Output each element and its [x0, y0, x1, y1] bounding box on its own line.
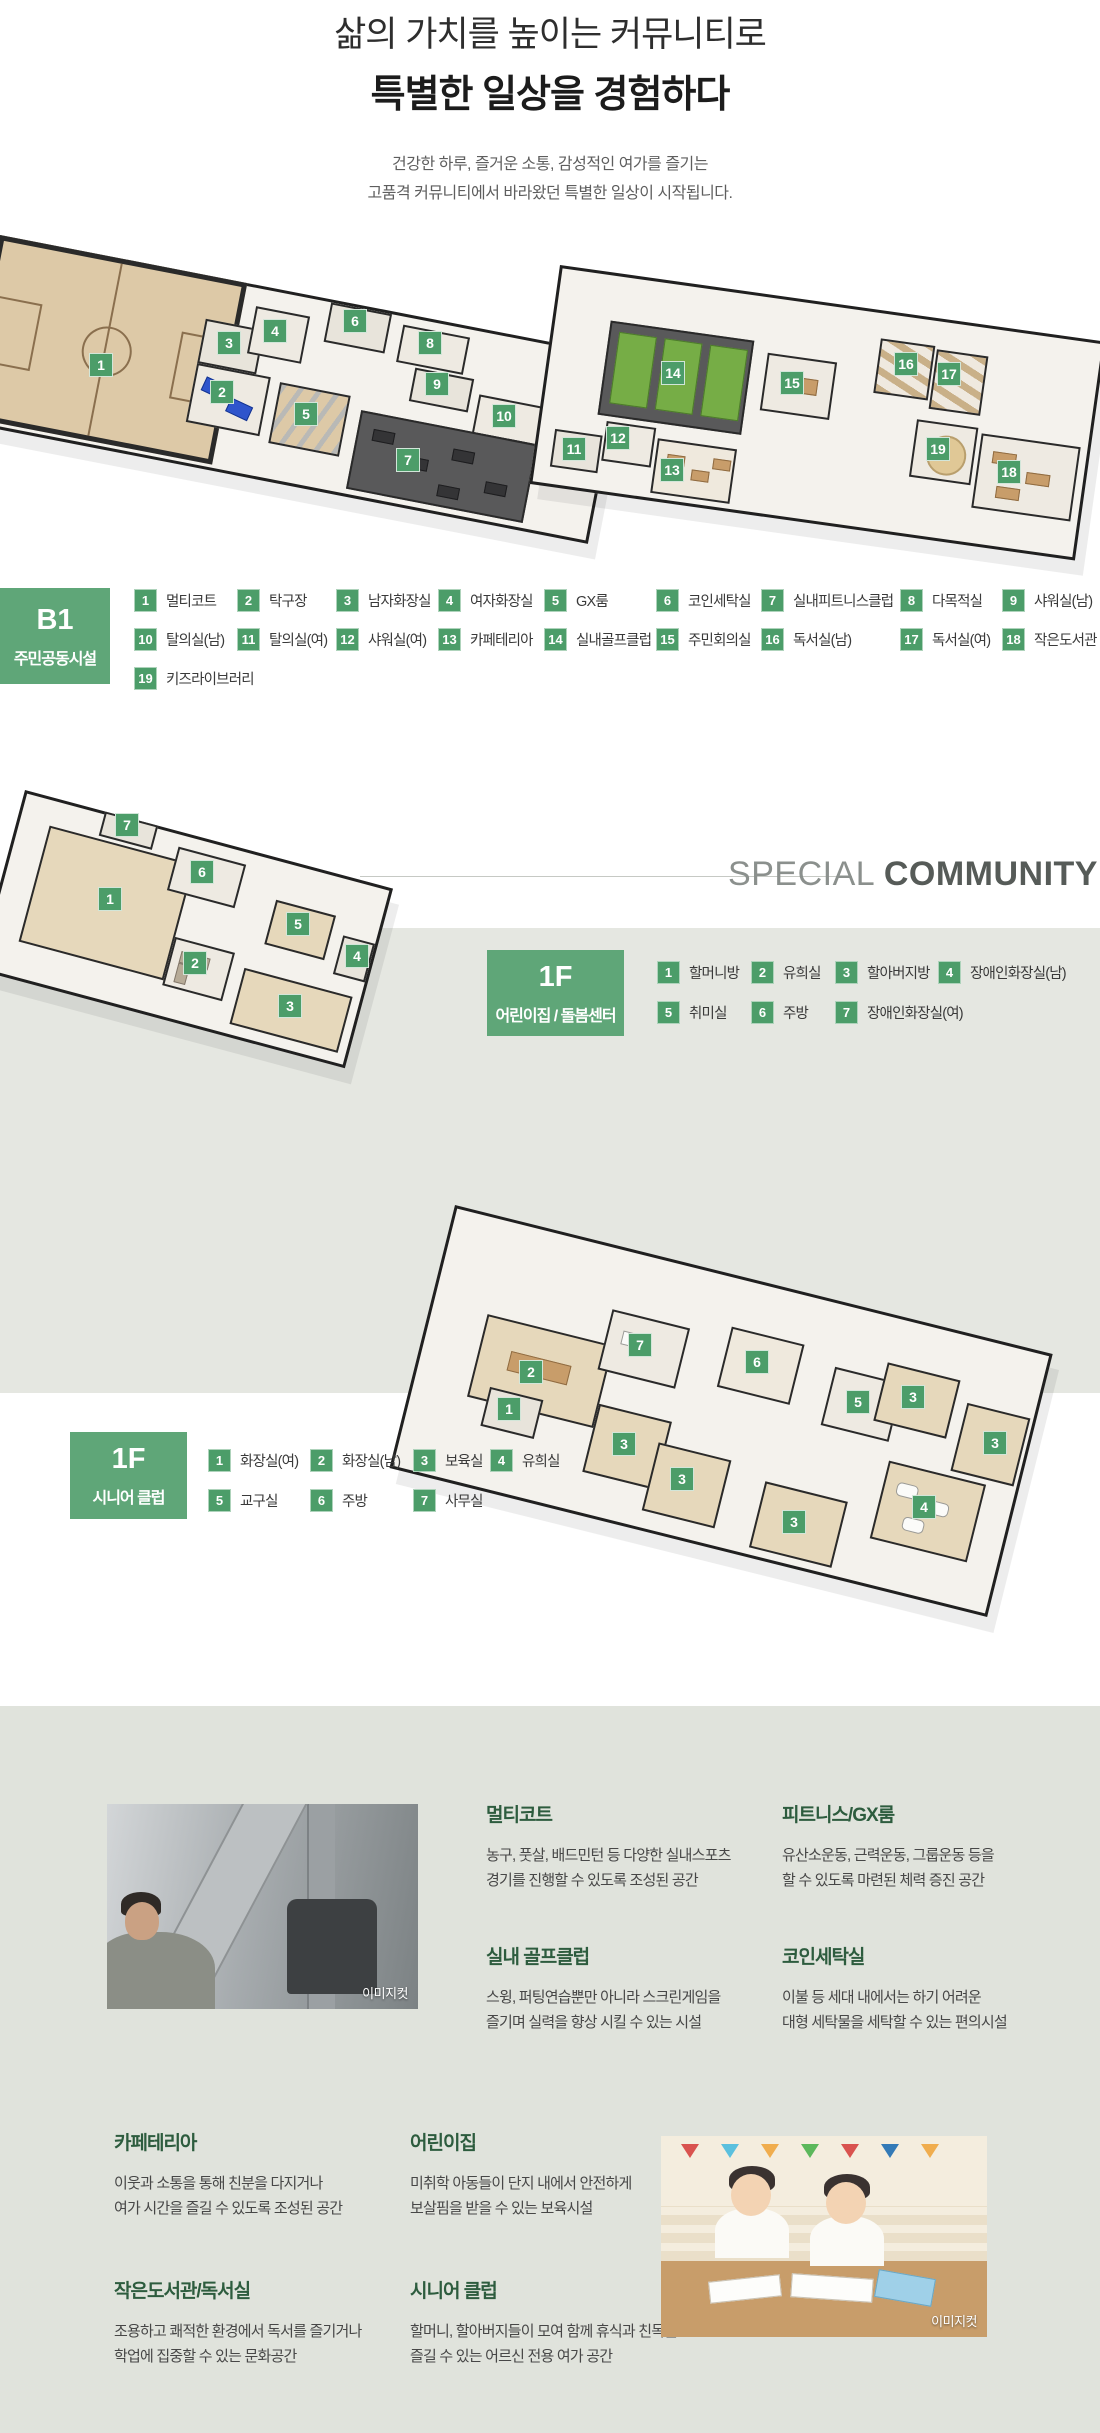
legend-label: 멀티코트 — [166, 590, 216, 611]
legend-item: 8 다목적실 — [900, 588, 982, 612]
legend-item: 10 탈의실(남) — [134, 627, 224, 651]
desc-multicourt: 멀티코트 농구, 풋살, 배드민턴 등 다양한 실내스포츠 경기를 진행할 수 … — [486, 1800, 786, 1893]
senior-floor-box: 1F 시니어 클럽 — [70, 1432, 187, 1519]
page-title-line2: 특별한 일상을 경험하다 — [0, 63, 1100, 118]
legend-label: 유희실 — [522, 1450, 560, 1471]
legend-label: 사무실 — [445, 1490, 483, 1511]
desc-title: 작은도서관/독서실 — [114, 2276, 414, 2303]
legend-number-badge: 1 — [134, 589, 157, 612]
court-key-left — [0, 295, 43, 371]
legend-number-badge: 6 — [310, 1489, 333, 1512]
plan-marker: 9 — [425, 372, 449, 396]
legend-label: 주민회의실 — [688, 629, 751, 650]
legend-number-badge: 1 — [208, 1449, 231, 1472]
daycare-floor-name: 어린이집 / 돌봄센터 — [495, 1002, 615, 1026]
legend-label: 주방 — [783, 1002, 808, 1023]
legend-item: 9 샤워실(남) — [1002, 588, 1092, 612]
legend-item: 2 유희실 — [751, 960, 821, 984]
legend-label: 장애인화장실(남) — [970, 962, 1066, 983]
plan-marker: 3 — [612, 1432, 636, 1456]
photo-caption: 이미지컷 — [362, 1983, 408, 2002]
desc-indoor-golf: 실내 골프클럽 스윙, 퍼팅연습뿐만 아니라 스크린게임을 즐기며 실력을 향상… — [486, 1942, 786, 2035]
legend-label: 장애인화장실(여) — [867, 1002, 963, 1023]
desc-title: 실내 골프클럽 — [486, 1942, 786, 1969]
plan-marker: 5 — [846, 1390, 870, 1414]
page-subtitle: 건강한 하루, 즐거운 소통, 감성적인 여가를 즐기는 고품격 커뮤니티에서 … — [0, 150, 1100, 208]
legend-label: 다목적실 — [932, 590, 982, 611]
gym-equipment — [484, 481, 508, 497]
gym-machine-seat — [287, 1899, 377, 1994]
legend-number-badge: 11 — [237, 628, 260, 651]
legend-label: 탈의실(여) — [269, 629, 327, 650]
legend-label: 주방 — [342, 1490, 367, 1511]
child-head — [826, 2182, 866, 2224]
legend-number-badge: 19 — [134, 667, 157, 690]
desc-title: 피트니스/GX룸 — [782, 1800, 1082, 1827]
legend-number-badge: 5 — [544, 589, 567, 612]
legend-number-badge: 4 — [490, 1449, 513, 1472]
plan-marker: 6 — [343, 309, 367, 333]
gym-photo: 이미지컷 — [107, 1804, 418, 2009]
legend-number-badge: 15 — [656, 628, 679, 651]
notebook — [790, 2273, 873, 2303]
legend-number-badge: 13 — [438, 628, 461, 651]
legend-item: 2 화장실(남) — [310, 1448, 400, 1472]
legend-item: 7 사무실 — [413, 1488, 483, 1512]
desc-coin-laundry: 코인세탁실 이불 등 세대 내에서는 하기 어려운 대형 세탁물을 세탁할 수 … — [782, 1942, 1082, 2035]
plan-marker: 1 — [89, 353, 113, 377]
legend-item: 19 키즈라이브러리 — [134, 666, 254, 690]
legend-label: 샤워실(남) — [1034, 590, 1092, 611]
cafe-table — [690, 469, 709, 482]
bunting-flag — [761, 2144, 779, 2158]
legend-item: 14 실내골프클럽 — [544, 627, 651, 651]
legend-label: 카페테리아 — [470, 629, 533, 650]
legend-item: 7 실내피트니스클럽 — [761, 588, 893, 612]
legend-item: 7 장애인화장실(여) — [835, 1000, 963, 1024]
legend-number-badge: 1 — [657, 961, 680, 984]
legend-number-badge: 17 — [900, 628, 923, 651]
desc-line: 유산소운동, 근력운동, 그룹운동 등을 — [782, 1843, 1082, 1868]
header: 삶의 가치를 높이는 커뮤니티로 특별한 일상을 경험하다 건강한 하루, 즐거… — [0, 0, 1100, 208]
plan-marker: 1 — [497, 1397, 521, 1421]
plan-marker: 3 — [278, 994, 302, 1018]
cafe-table — [712, 458, 731, 471]
desc-line: 즐길 수 있는 어르신 전용 여가 공간 — [410, 2344, 710, 2369]
legend-number-badge: 2 — [310, 1449, 333, 1472]
plan-marker: 8 — [418, 331, 442, 355]
legend-number-badge: 10 — [134, 628, 157, 651]
b1-floor-box: B1 주민공동시설 — [0, 588, 110, 684]
plan-marker: 2 — [519, 1360, 543, 1384]
plan-marker: 13 — [660, 458, 684, 482]
desc-line: 조용하고 쾌적한 환경에서 독서를 즐기거나 — [114, 2319, 414, 2344]
desc-line: 할 수 있도록 마련된 체력 증진 공간 — [782, 1868, 1082, 1893]
gym-equipment — [451, 448, 475, 464]
legend-item: 16 독서실(남) — [761, 627, 851, 651]
golf-turf — [700, 345, 748, 422]
plan-marker: 1 — [98, 887, 122, 911]
special-community-light: SPECIAL — [728, 855, 874, 893]
desc-line: 경기를 진행할 수 있도록 조성된 공간 — [486, 1868, 786, 1893]
page-subtitle-line1: 건강한 하루, 즐거운 소통, 감성적인 여가를 즐기는 — [0, 150, 1100, 179]
plan-marker: 4 — [263, 319, 287, 343]
legend-label: 화장실(남) — [342, 1450, 400, 1471]
plan-marker: 5 — [286, 912, 310, 936]
bunting-flag — [841, 2144, 859, 2158]
legend-number-badge: 3 — [835, 961, 858, 984]
golf-turf — [609, 332, 657, 409]
legend-item: 6 주방 — [751, 1000, 808, 1024]
legend-number-badge: 16 — [761, 628, 784, 651]
legend-number-badge: 7 — [413, 1489, 436, 1512]
plan-marker: 2 — [183, 951, 207, 975]
legend-number-badge: 12 — [336, 628, 359, 651]
legend-number-badge: 6 — [656, 589, 679, 612]
legend-number-badge: 14 — [544, 628, 567, 651]
desc-title: 멀티코트 — [486, 1800, 786, 1827]
legend-item: 5 GX룸 — [544, 588, 608, 612]
plan-marker: 7 — [115, 813, 139, 837]
page-title-line1: 삶의 가치를 높이는 커뮤니티로 — [0, 6, 1100, 57]
plan-marker: 19 — [926, 437, 950, 461]
plan-marker: 3 — [217, 331, 241, 355]
legend-item: 4 여자화장실 — [438, 588, 533, 612]
desc-line: 스윙, 퍼팅연습뿐만 아니라 스크린게임을 — [486, 1985, 786, 2010]
plan-marker: 6 — [190, 860, 214, 884]
legend-label: 키즈라이브러리 — [166, 668, 254, 689]
legend-label: 코인세탁실 — [688, 590, 751, 611]
legend-item: 4 장애인화장실(남) — [938, 960, 1066, 984]
legend-label: 보육실 — [445, 1450, 483, 1471]
desc-line: 농구, 풋살, 배드민턴 등 다양한 실내스포츠 — [486, 1843, 786, 1868]
legend-item: 1 멀티코트 — [134, 588, 216, 612]
daycare-floor-label: 1F — [539, 961, 573, 994]
person-head — [125, 1902, 159, 1940]
legend-label: 할아버지방 — [867, 962, 930, 983]
legend-label: 샤워실(여) — [368, 629, 426, 650]
plan-marker: 3 — [983, 1431, 1007, 1455]
plan-marker: 3 — [901, 1385, 925, 1409]
legend-item: 6 주방 — [310, 1488, 367, 1512]
notebook — [708, 2274, 782, 2303]
bunting-flag — [881, 2144, 899, 2158]
photo-caption: 이미지컷 — [931, 2311, 977, 2330]
desc-line: 여가 시간을 즐길 수 있도록 조성된 공간 — [114, 2196, 414, 2221]
senior-floor-label: 1F — [112, 1443, 146, 1476]
legend-label: 할머니방 — [689, 962, 739, 983]
plan-marker: 4 — [912, 1495, 936, 1519]
legend-number-badge: 5 — [657, 1001, 680, 1024]
bunting-flag — [801, 2144, 819, 2158]
community-brochure-page: 삶의 가치를 높이는 커뮤니티로 특별한 일상을 경험하다 건강한 하루, 즐거… — [0, 0, 1100, 2433]
legend-item: 6 코인세탁실 — [656, 588, 751, 612]
plan-marker: 18 — [997, 460, 1021, 484]
bunting-flag — [921, 2144, 939, 2158]
special-community-bold: COMMUNITY — [884, 855, 1098, 893]
legend-item: 1 화장실(여) — [208, 1448, 298, 1472]
plan-marker: 7 — [628, 1333, 652, 1357]
desc-line: 대형 세탁물을 세탁할 수 있는 편의시설 — [782, 2010, 1082, 2035]
desc-line: 학업에 집중할 수 있는 문화공간 — [114, 2344, 414, 2369]
blue-notebook — [874, 2269, 936, 2307]
plan-marker: 4 — [345, 944, 369, 968]
plan-marker: 3 — [670, 1467, 694, 1491]
legend-label: 독서실(남) — [793, 629, 851, 650]
legend-item: 13 카페테리아 — [438, 627, 533, 651]
bunting-flag — [681, 2144, 699, 2158]
special-community-heading: SPECIAL COMMUNITY — [728, 855, 1098, 894]
legend-number-badge: 8 — [900, 589, 923, 612]
legend-label: 남자화장실 — [368, 590, 431, 611]
child-head — [731, 2174, 771, 2216]
legend-label: GX룸 — [576, 590, 608, 611]
person-torso — [107, 1932, 215, 2009]
legend-item: 2 탁구장 — [237, 588, 307, 612]
legend-item: 12 샤워실(여) — [336, 627, 426, 651]
legend-number-badge: 3 — [413, 1449, 436, 1472]
desc-fitness-gx: 피트니스/GX룸 유산소운동, 근력운동, 그룹운동 등을 할 수 있도록 마련… — [782, 1800, 1082, 1893]
legend-number-badge: 3 — [336, 589, 359, 612]
plan-marker: 17 — [937, 362, 961, 386]
b1-floor-label: B1 — [36, 604, 73, 637]
plan-marker: 2 — [210, 380, 234, 404]
plan-marker: 10 — [492, 404, 516, 428]
legend-number-badge: 5 — [208, 1489, 231, 1512]
desc-small-library: 작은도서관/독서실 조용하고 쾌적한 환경에서 독서를 즐기거나 학업에 집중할… — [114, 2276, 414, 2369]
b1-floorplan-right-wing — [529, 265, 1100, 561]
plan-marker: 5 — [294, 402, 318, 426]
bunting-flag — [721, 2144, 739, 2158]
legend-number-badge: 4 — [438, 589, 461, 612]
desc-line: 이웃과 소통을 통해 친분을 다지거나 — [114, 2171, 414, 2196]
library-table — [1025, 472, 1050, 487]
legend-item: 3 남자화장실 — [336, 588, 431, 612]
legend-item: 4 유희실 — [490, 1448, 560, 1472]
library-table — [995, 486, 1020, 501]
legend-item: 5 취미실 — [657, 1000, 727, 1024]
legend-item: 1 할머니방 — [657, 960, 739, 984]
plan-marker: 15 — [780, 371, 804, 395]
legend-item: 18 작은도서관 — [1002, 627, 1097, 651]
legend-item: 15 주민회의실 — [656, 627, 751, 651]
legend-item: 3 보육실 — [413, 1448, 483, 1472]
legend-label: 실내골프클럽 — [576, 629, 651, 650]
plan-marker: 7 — [396, 448, 420, 472]
legend-number-badge: 4 — [938, 961, 961, 984]
legend-label: 탁구장 — [269, 590, 307, 611]
legend-number-badge: 18 — [1002, 628, 1025, 651]
desc-title: 코인세탁실 — [782, 1942, 1082, 1969]
desc-cafeteria: 카페테리아 이웃과 소통을 통해 친분을 다지거나 여가 시간을 즐길 수 있도… — [114, 2128, 414, 2221]
legend-label: 독서실(여) — [932, 629, 990, 650]
page-subtitle-line2: 고품격 커뮤니티에서 바라왔던 특별한 일상이 시작됩니다. — [0, 179, 1100, 208]
daycare-floor-box: 1F 어린이집 / 돌봄센터 — [487, 950, 624, 1036]
b1-floor-name: 주민공동시설 — [14, 645, 96, 669]
gym-equipment — [372, 429, 396, 445]
senior-floor-name: 시니어 클럽 — [92, 1484, 164, 1508]
legend-label: 작은도서관 — [1034, 629, 1097, 650]
plan-marker: 11 — [562, 437, 586, 461]
small-library-room — [971, 433, 1080, 521]
plan-marker: 6 — [745, 1350, 769, 1374]
legend-item: 11 탈의실(여) — [237, 627, 327, 651]
legend-number-badge: 2 — [237, 589, 260, 612]
desc-line: 이불 등 세대 내에서는 하기 어려운 — [782, 1985, 1082, 2010]
plan-marker: 3 — [782, 1510, 806, 1534]
legend-label: 탈의실(남) — [166, 629, 224, 650]
desc-line: 즐기며 실력을 향상 시킬 수 있는 시설 — [486, 2010, 786, 2035]
legend-label: 교구실 — [240, 1490, 278, 1511]
legend-item: 3 할아버지방 — [835, 960, 930, 984]
gym-equipment — [436, 484, 460, 500]
legend-number-badge: 6 — [751, 1001, 774, 1024]
legend-label: 실내피트니스클럽 — [793, 590, 893, 611]
legend-label: 화장실(여) — [240, 1450, 298, 1471]
plan-marker: 16 — [894, 352, 918, 376]
plan-marker: 12 — [606, 426, 630, 450]
plan-marker: 14 — [661, 361, 685, 385]
b1-floorplan-left-wing — [0, 235, 624, 544]
kids-photo: 이미지컷 — [661, 2136, 987, 2337]
legend-label: 유희실 — [783, 962, 821, 983]
legend-item: 5 교구실 — [208, 1488, 278, 1512]
legend-number-badge: 7 — [835, 1001, 858, 1024]
legend-number-badge: 9 — [1002, 589, 1025, 612]
desc-title: 카페테리아 — [114, 2128, 414, 2155]
legend-label: 취미실 — [689, 1002, 727, 1023]
legend-label: 여자화장실 — [470, 590, 533, 611]
legend-number-badge: 7 — [761, 589, 784, 612]
legend-item: 17 독서실(여) — [900, 627, 990, 651]
legend-number-badge: 2 — [751, 961, 774, 984]
